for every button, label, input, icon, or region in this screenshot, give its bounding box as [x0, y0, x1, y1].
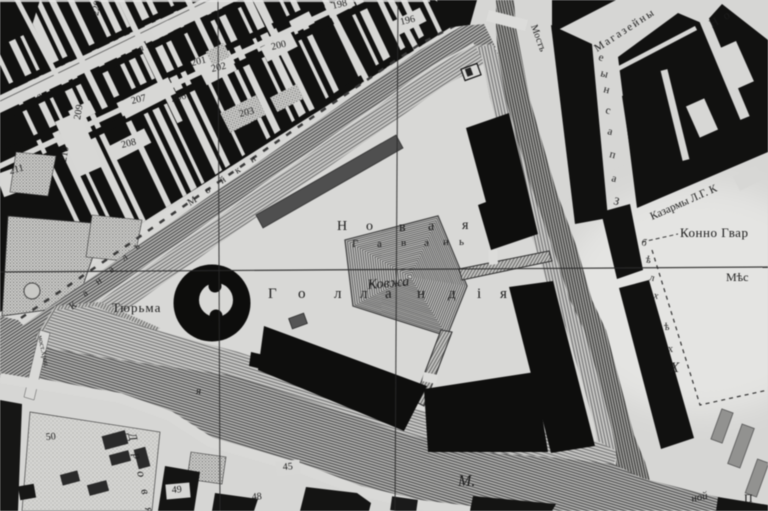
svg-text:Х: Х: [669, 360, 680, 376]
svg-text:я: я: [500, 286, 507, 302]
svg-text:і: і: [477, 286, 481, 302]
svg-text:ѣ: ѣ: [664, 322, 670, 333]
svg-text:н: н: [443, 236, 449, 248]
svg-text:ь: ь: [459, 236, 464, 248]
svg-text:а: а: [377, 238, 382, 250]
svg-text:л: л: [334, 286, 342, 302]
svg-text:я: я: [195, 385, 201, 397]
svg-text:в: в: [401, 237, 406, 249]
svg-text:Мѣс: Мѣс: [726, 270, 749, 284]
svg-text:н: н: [417, 286, 425, 302]
svg-text:а: а: [428, 219, 435, 234]
svg-text:л: л: [360, 286, 368, 302]
svg-text:Конно Гвар: Конно Гвар: [680, 225, 748, 240]
svg-text:45: 45: [282, 461, 293, 473]
svg-text:я: я: [462, 218, 469, 233]
svg-text:М.: М.: [457, 473, 475, 490]
svg-text:о: о: [298, 286, 306, 302]
svg-text:в: в: [399, 220, 406, 235]
svg-text:а: а: [424, 237, 429, 249]
svg-text:Н: Н: [337, 219, 347, 234]
svg-text:о: о: [366, 219, 373, 234]
svg-text:49: 49: [171, 484, 182, 496]
svg-text:х: х: [668, 344, 673, 355]
svg-text:48: 48: [251, 491, 262, 503]
svg-text:д: д: [448, 286, 456, 302]
svg-text:50: 50: [45, 431, 56, 443]
svg-text:а: а: [385, 286, 392, 302]
svg-text:Тюрьма: Тюрьма: [112, 300, 161, 315]
svg-text:Г: Г: [352, 238, 358, 250]
svg-text:Г: Г: [268, 286, 277, 302]
svg-text:П: П: [744, 491, 753, 505]
